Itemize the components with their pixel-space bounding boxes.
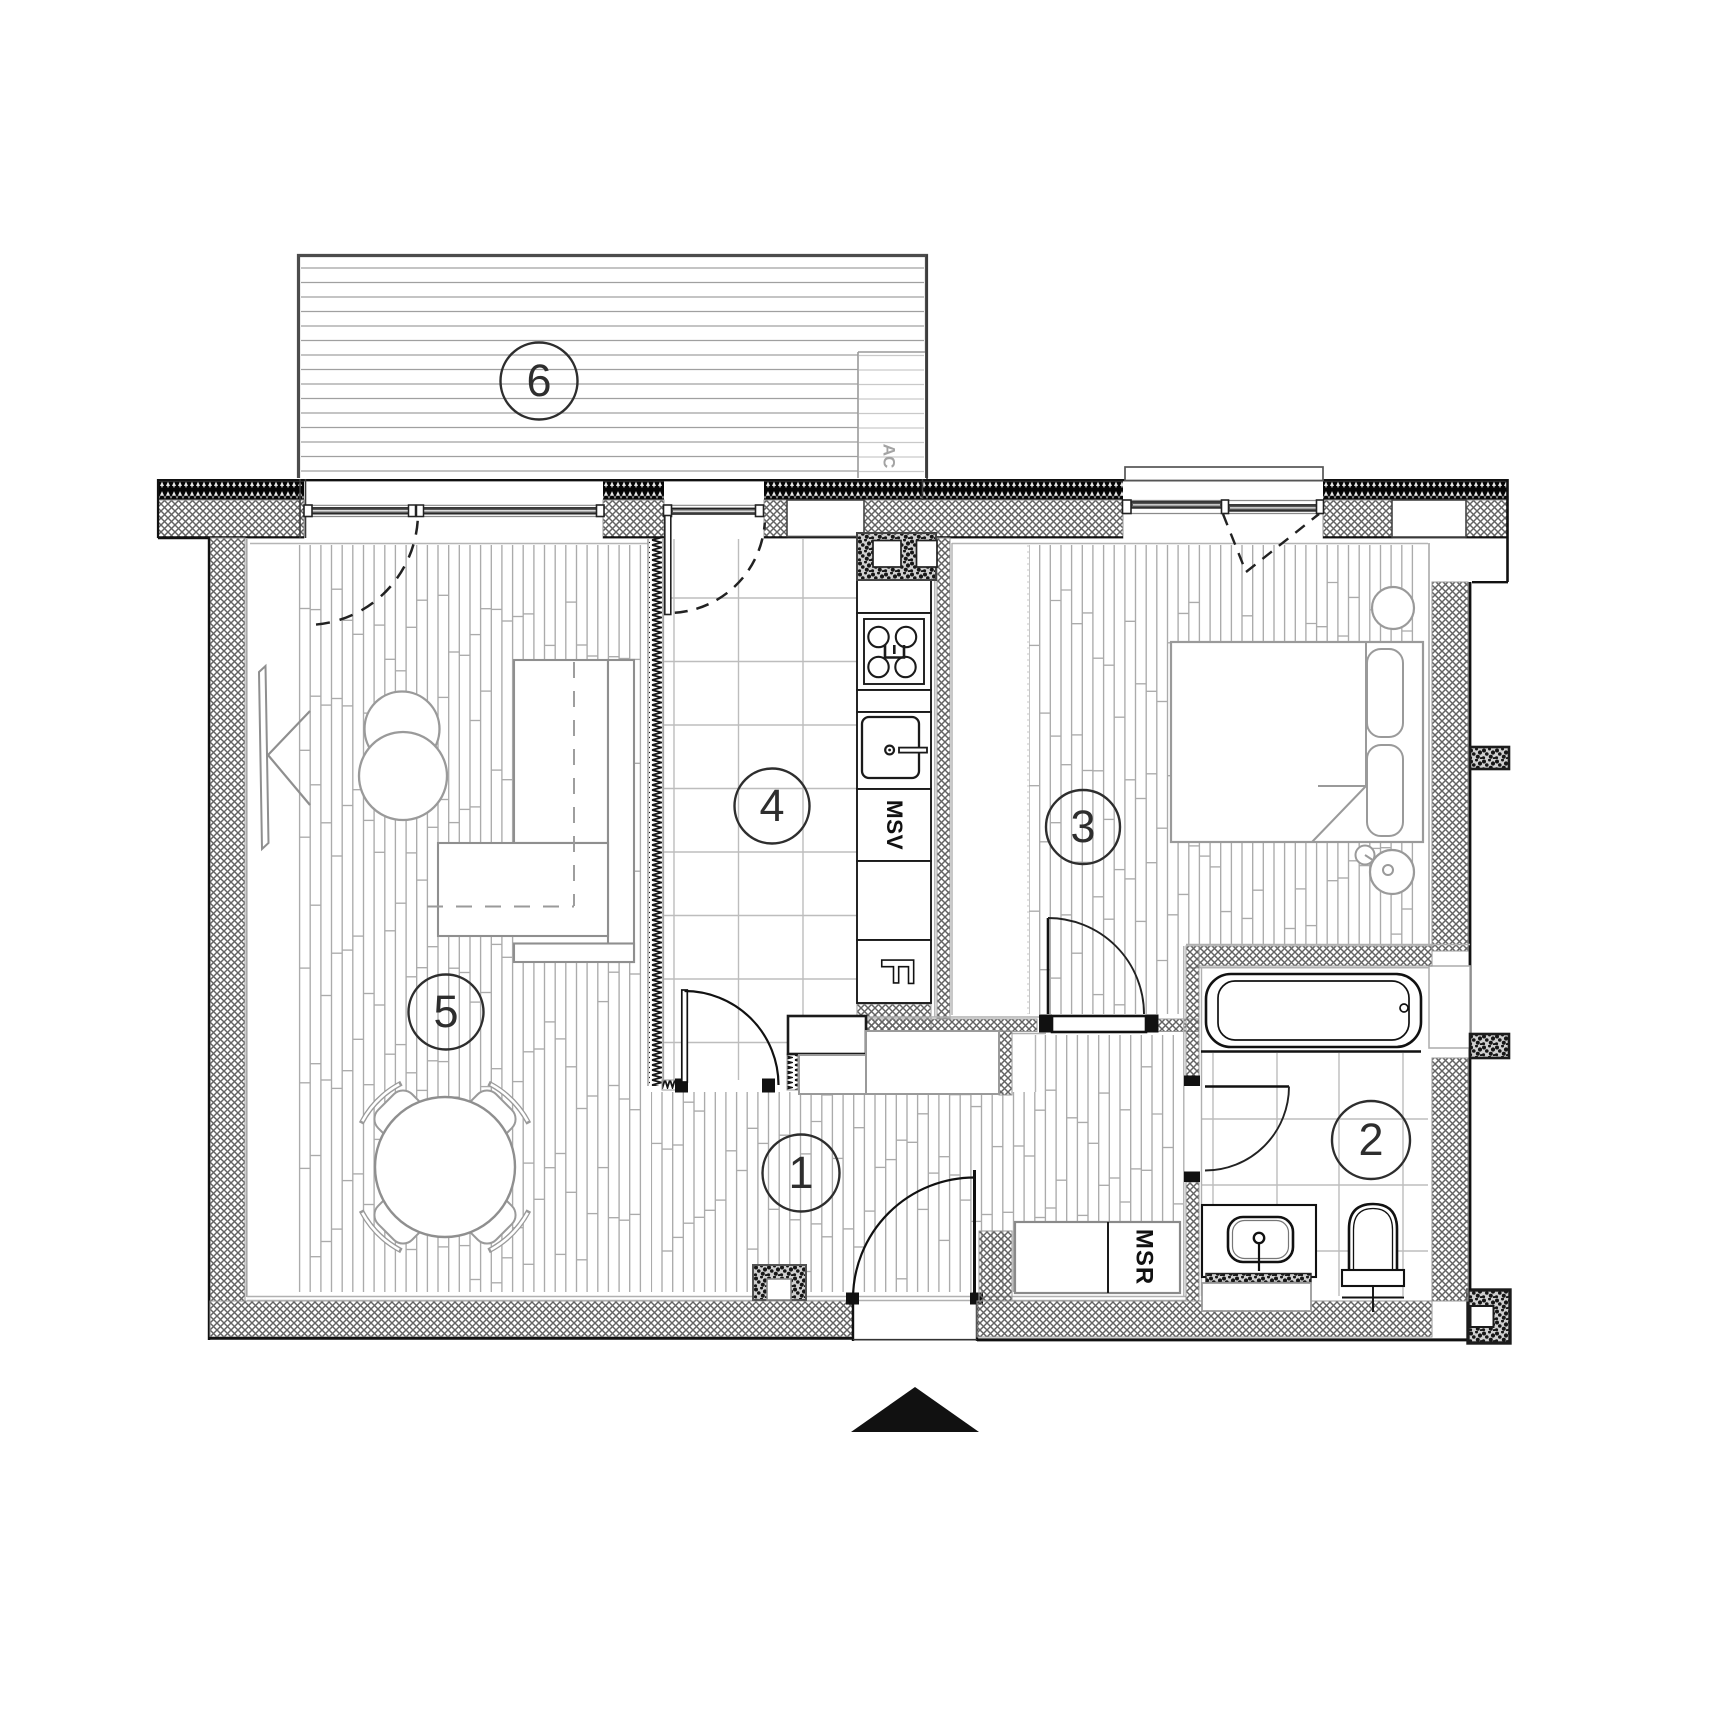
svg-text:3: 3 [1070,801,1095,852]
svg-text:MSR: MSR [1131,1229,1158,1285]
svg-text:1: 1 [788,1147,813,1198]
svg-text:AC: AC [880,444,899,469]
svg-text:MSV: MSV [882,800,907,850]
svg-text:6: 6 [526,355,551,406]
svg-text:5: 5 [433,986,458,1037]
svg-text:F: F [872,957,924,985]
svg-text:4: 4 [759,780,784,831]
svg-text:2: 2 [1358,1114,1383,1165]
